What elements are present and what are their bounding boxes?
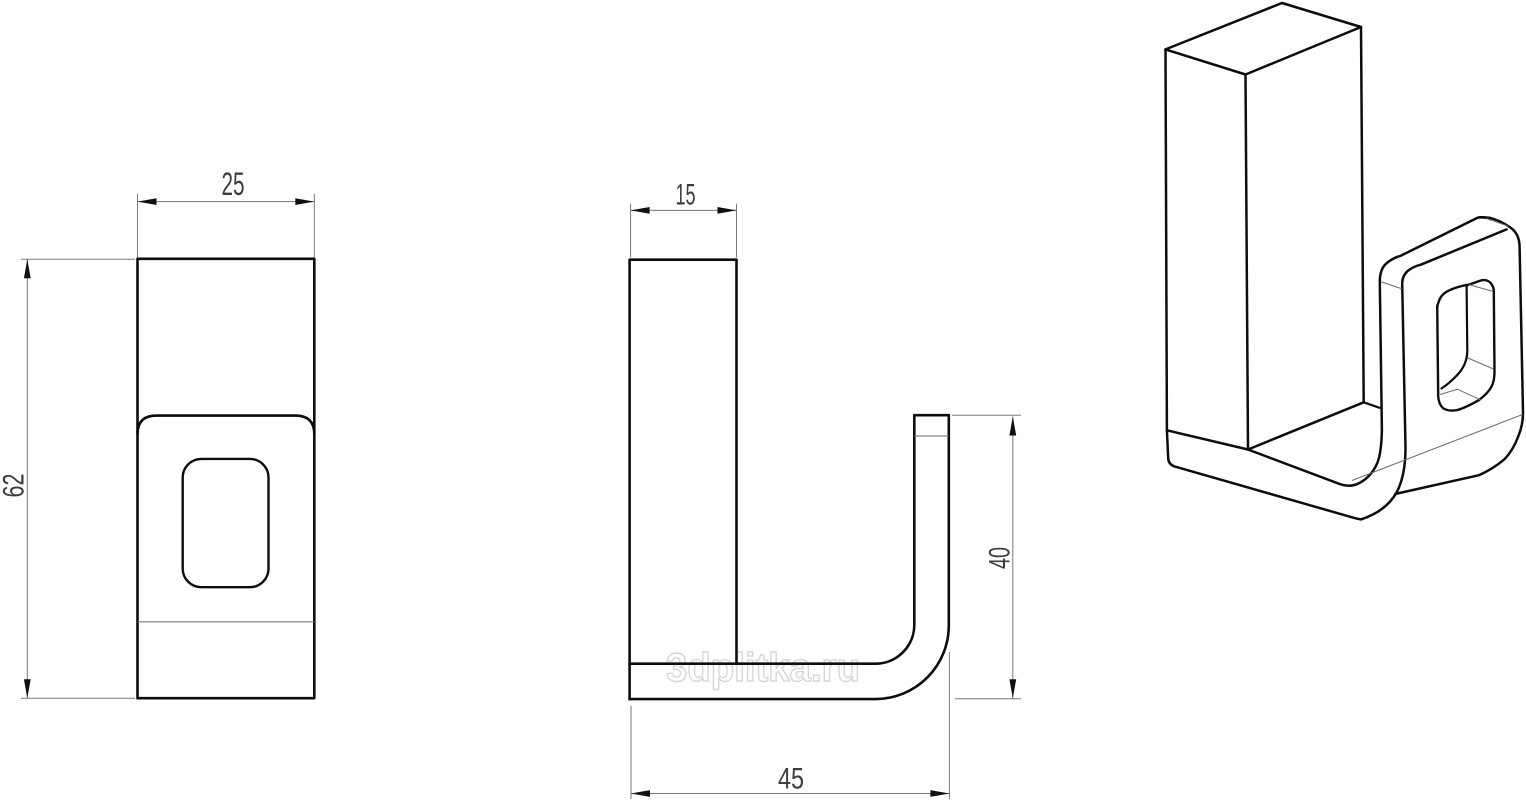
svg-text:25: 25: [222, 166, 245, 202]
svg-text:62: 62: [0, 474, 31, 498]
svg-text:3dplitka.ru: 3dplitka.ru: [666, 646, 860, 690]
svg-text:40: 40: [984, 547, 1017, 569]
svg-text:15: 15: [676, 179, 696, 212]
svg-text:45: 45: [778, 763, 804, 796]
